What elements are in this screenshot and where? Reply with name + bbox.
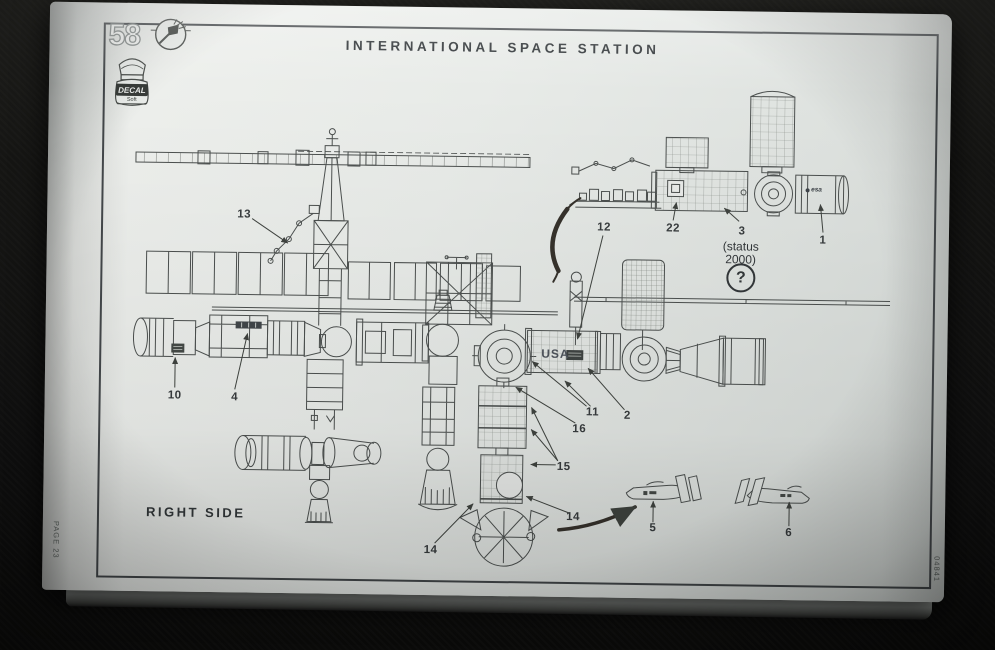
zvezda-service-module	[195, 315, 321, 359]
atv-cargo-vehicle	[666, 335, 766, 386]
p6-array-edge	[574, 297, 890, 305]
callout-2: 2	[624, 410, 631, 422]
nadir-module-stack	[477, 378, 527, 504]
usa-decal-marking: USA	[541, 347, 570, 361]
callout-6: 6	[785, 527, 792, 539]
callout-3: 3	[738, 225, 745, 237]
esa-logo-text: esa	[811, 186, 822, 193]
callout-1: 1	[819, 234, 826, 246]
soyuz-spacecraft-nadir	[418, 387, 459, 510]
progress-spacecraft	[133, 318, 196, 357]
page-number-sidebar: PAGE 23	[51, 521, 61, 559]
kit-number-sidebar: 04841	[932, 556, 941, 582]
transfer-node-ball	[319, 327, 351, 357]
us-lab-module	[525, 328, 621, 375]
callout-11: 11	[586, 406, 599, 418]
soyuz-nadir-small	[305, 465, 334, 522]
nadir-docking-module	[306, 359, 343, 429]
lifting-body-craft-6	[735, 477, 809, 506]
docking-ring-right	[754, 172, 793, 217]
esa-logo-dot	[806, 188, 810, 192]
instruction-page: INTERNATIONAL SPACE STATION 58 DEC	[42, 2, 952, 603]
photo-of-instruction-page: INTERNATIONAL SPACE STATION 58 DEC	[0, 0, 995, 650]
callout-15: 15	[557, 461, 571, 473]
zarya-module	[356, 319, 429, 366]
topright-robot-arm	[572, 157, 650, 175]
callout-4: 4	[231, 391, 238, 403]
docked-cargo-cylinders	[235, 435, 381, 471]
callout-13: 13	[237, 208, 251, 220]
starboard-ring	[622, 337, 667, 382]
callout-5: 5	[649, 522, 656, 534]
lifting-body-craft-5	[626, 474, 701, 503]
swoosh-arrow-top	[552, 198, 581, 282]
node-sphere-and-port	[426, 290, 459, 384]
callout-14-right: 14	[566, 511, 580, 523]
zvezda-2000-module	[651, 170, 748, 211]
starboard-radiator	[621, 260, 664, 351]
esa-decal-marking: esa	[806, 186, 822, 193]
x38-return-vehicle	[459, 508, 548, 567]
callout-10: 10	[168, 389, 182, 401]
topright-tall-cylinder	[750, 91, 795, 173]
callout-14-left: 14	[424, 544, 438, 556]
callout-22: 22	[666, 222, 680, 234]
zarya-array-edge	[212, 307, 558, 315]
esa-module	[795, 175, 849, 214]
callout-16: 16	[572, 423, 586, 435]
callout-12: 12	[597, 221, 611, 233]
view-label: RIGHT SIDE	[146, 504, 246, 520]
topright-platform-bar	[569, 189, 661, 208]
topright-box-module	[666, 137, 708, 173]
